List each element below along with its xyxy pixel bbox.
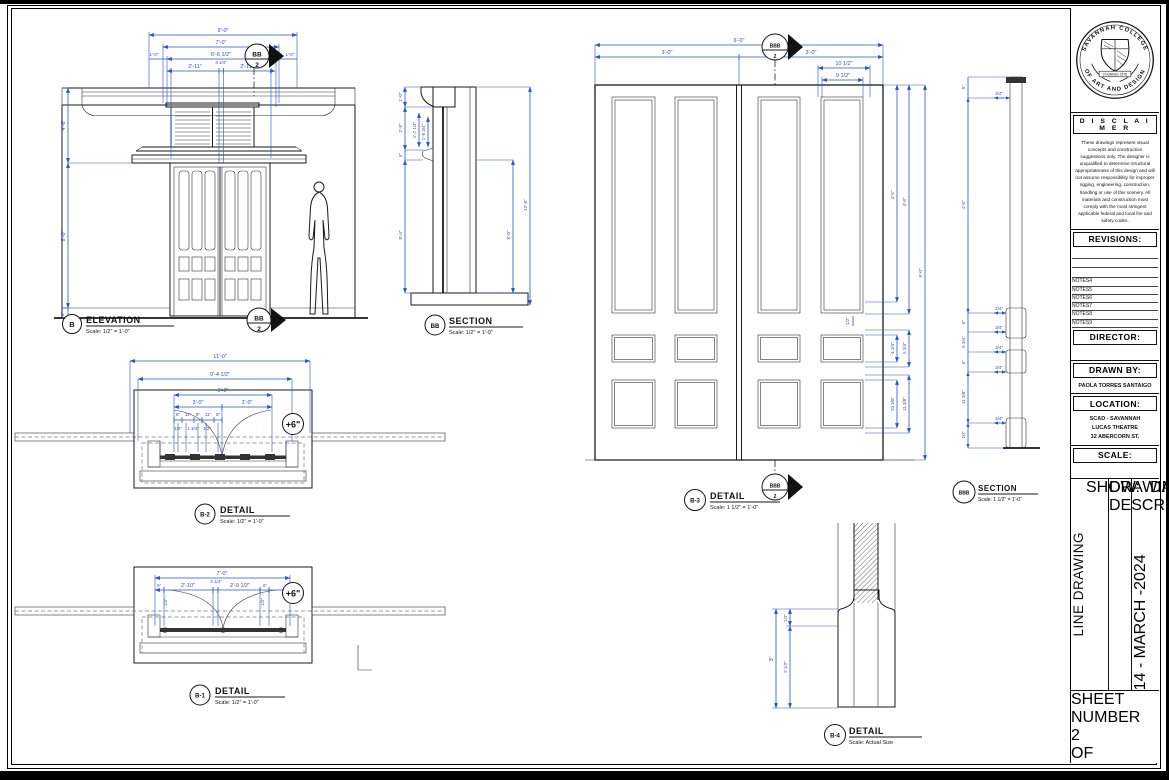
section-dimensions: 1'-0" 2'-8" 5" 8'-4" 1'-7 1/4" 1'-6 3/4"… xyxy=(398,87,530,305)
label-title: DETAIL xyxy=(710,491,745,501)
dim-label: 4 3/4" xyxy=(890,342,895,354)
label-scale: Scale: 1/2" = 1'-0" xyxy=(220,519,264,525)
view-label-detail-b2: B-2 DETAIL Scale: 1/2" = 1'-0" xyxy=(195,504,290,525)
revisions-title: REVISIONS: xyxy=(1073,232,1157,247)
label-scale: Scale: 1/2" = 1'-0" xyxy=(215,700,259,706)
label-bubble: B-1 xyxy=(195,694,205,700)
label-bubble: BB xyxy=(431,324,440,330)
label-title: DETAIL xyxy=(220,505,255,515)
dim-label: 3 1/4" xyxy=(210,579,222,584)
marker-sheet: 2 xyxy=(257,326,261,333)
plan-dimensions: 7'-0" 6" 2'-10" 3 1/4" 2'-9 1/2" 6" 1/2"… xyxy=(155,571,290,626)
label-title: DETAIL xyxy=(215,686,250,696)
marker-id: BB xyxy=(254,316,264,323)
dim-label: 11'-0" xyxy=(213,354,227,360)
date-column: 14 - MARCH -2024 DATE: xyxy=(1132,479,1169,690)
dim-label: 3/4" xyxy=(995,365,1003,370)
dim-label: 2'-8" xyxy=(398,123,403,132)
panel-thickness-dims: 3/4" 3/4" 3/4" 3/4" 3/4" 3/4" xyxy=(994,91,1010,423)
dim-label: 3/4" xyxy=(995,91,1003,96)
dim-label: 8'-4" xyxy=(398,230,403,239)
dim-label: 3" xyxy=(769,656,775,661)
location-title: LOCATION: xyxy=(1073,396,1157,411)
dim-label: 4'-6" xyxy=(961,200,966,209)
show-column: LINE DRAWING SHOW: xyxy=(1071,479,1109,690)
plus6-label: +6" xyxy=(286,420,301,430)
seal-banner: FOUNDED 1978 xyxy=(1103,73,1127,77)
drawn-by-value: PAOLA TORRES SANTAIGO xyxy=(1071,380,1159,395)
elevation-height-badge: +6" xyxy=(283,414,304,435)
dim-label: 2'-10" xyxy=(181,583,195,589)
show-value: LINE DRAWING xyxy=(1071,532,1086,637)
page-edge-bottom xyxy=(0,771,1169,780)
label-title: DETAIL xyxy=(849,726,884,736)
dim-label: 1/2" xyxy=(260,598,265,606)
location-line: SCAD - SAVANNAH xyxy=(1071,415,1159,424)
disclaimer-body: These drawings represent visual concepts… xyxy=(1071,136,1159,230)
dim-label: 1'-0" xyxy=(398,92,403,101)
revision-row: NOTES7 xyxy=(1072,303,1158,311)
dim-label: 6" xyxy=(60,312,65,317)
plus6-label: +6" xyxy=(286,589,301,599)
dim-label: 11 3/8" xyxy=(961,390,966,404)
dim-label: 9'-4 1/2" xyxy=(210,372,230,378)
section-structure xyxy=(411,87,528,305)
label-title: SECTION xyxy=(449,316,493,326)
director-value xyxy=(1071,347,1159,361)
dim-label: 6'-0" xyxy=(734,38,745,44)
dim-label: 9 1/2" xyxy=(836,73,850,79)
dim-label: 1/2" xyxy=(203,426,211,431)
dim-label: 11" xyxy=(185,412,192,417)
dim-label: 8'-0" xyxy=(506,230,511,239)
plan-structure xyxy=(15,390,445,488)
view-detail-b1: 7'-0" 6" 2'-10" 3 1/4" 2'-9 1/2" 6" 1/2"… xyxy=(10,550,450,710)
sheet-of-label: OF xyxy=(1071,745,1159,763)
dim-label: 1'-0" xyxy=(286,52,295,57)
dim-label: 2 1/2" xyxy=(783,661,788,673)
scale-title: SCALE: xyxy=(1073,448,1157,463)
dim-label: 4'-8" xyxy=(902,197,907,206)
marker-id: BB xyxy=(252,52,262,59)
dim-label: 8'-0" xyxy=(918,268,923,277)
dim-label: 3'-0" xyxy=(662,50,673,56)
dim-label: 5 3/4" xyxy=(902,342,907,354)
view-section-bbb: 5" 4'-6" 5" 5 3/4" 5" 11 3/8" 10" 3/4" 3… xyxy=(948,58,1040,513)
marker-sheet: 2 xyxy=(255,62,259,69)
director-title: DIRECTOR: xyxy=(1073,330,1157,345)
double-door xyxy=(170,163,270,316)
dim-label: 10 3/8" xyxy=(890,397,895,412)
dim-label: 1'-7 1/4" xyxy=(412,121,417,138)
dim-label: 5" xyxy=(398,153,403,158)
label-bubble: B xyxy=(69,320,75,329)
scale-value xyxy=(1071,465,1159,479)
dim-label: 5" xyxy=(961,85,966,90)
revision-row: NOTES6 xyxy=(1072,295,1158,303)
dim-label: 12'-6" xyxy=(523,199,528,211)
label-scale: Scale: 1/2" = 1'-0" xyxy=(86,329,130,335)
location-line: LUCAS THEATRE xyxy=(1071,424,1159,433)
dim-label: 1/2" xyxy=(845,317,850,325)
label-bubble: B-4 xyxy=(830,734,840,740)
title-block: SAVANNAH COLLEGE OF ART AND DESIGN FOUND… xyxy=(1070,8,1159,763)
dim-label: 1/2" xyxy=(783,614,788,622)
description-column: DRAWING DESCRIPTION: xyxy=(1109,479,1132,690)
molding-profile xyxy=(838,523,895,707)
dim-label: 6" xyxy=(157,583,162,588)
disclaimer-title: D I S C L A I M E R xyxy=(1073,115,1157,134)
section-cut-marker-bbb-bottom: BBB 2 xyxy=(762,460,803,500)
section-dimensions: 5" 4'-6" 5" 5 3/4" 5" 11 3/8" 10" 3/4" 3… xyxy=(961,77,1010,448)
dim-label: 1 3/4" xyxy=(187,426,199,431)
elevation-height-badge: +6" xyxy=(283,583,304,604)
revision-row: NOTES4 xyxy=(1072,278,1158,286)
view-label-section-bb: BB SECTION Scale: 1/2" = 1'-0" xyxy=(425,315,523,336)
section-cut-marker-bbb-top: BBB 2 xyxy=(762,34,803,85)
dim-label: 4'-6" xyxy=(61,119,67,130)
label-title: SECTION xyxy=(978,484,1017,493)
dim-label: 3'-0" xyxy=(806,50,817,56)
dim-label: 3/4" xyxy=(995,345,1003,350)
sheet-number-value: 2 xyxy=(1071,727,1159,745)
marker-id: BBB xyxy=(770,44,781,50)
revision-row: NOTES8 xyxy=(1072,311,1158,319)
dim-label: 5 3/4" xyxy=(961,336,966,348)
dim-label: 7'-0" xyxy=(217,571,228,577)
view-elevation-b: 9'-0" 7'-0" 6'-6 1/2" 1'-0" 1'-0" 2'-11"… xyxy=(38,8,388,342)
location-line: 32 ABERCORN ST. xyxy=(1071,433,1159,442)
label-bubble: B-2 xyxy=(200,513,210,519)
label-title: ELEVATION xyxy=(86,315,141,325)
page-edge-top xyxy=(0,0,1169,4)
revision-row xyxy=(1072,268,1158,278)
molding-dimensions: 3" 1/2" 2 1/2" xyxy=(769,609,838,708)
revision-row: NOTES5 xyxy=(1072,287,1158,295)
dim-label: 8" xyxy=(216,412,221,417)
scad-seal-icon: SAVANNAH COLLEGE OF ART AND DESIGN FOUND… xyxy=(1073,10,1157,110)
view-label-detail-b1: B-1 DETAIL Scale: 1/2" = 1'-0" xyxy=(190,685,285,706)
label-scale: Scale: 1/2" = 1'-0" xyxy=(449,330,493,336)
view-label-section-bbb: BBB SECTION Scale: 1 1/2" = 1'-0" xyxy=(953,481,1038,503)
dim-label: 1'-6 3/4" xyxy=(421,123,426,140)
dim-label: 8" xyxy=(176,412,181,417)
sheet-number-box: SHEET NUMBER 2 OF xyxy=(1071,691,1159,763)
section-cut-marker-bb-bottom: BB 2 xyxy=(247,308,286,333)
dim-label: 10" xyxy=(961,431,966,438)
label-scale: Scale: Actual Size xyxy=(849,740,893,746)
view-detail-b2: 11'-0" 9'-4 1/2" 6'-0" 3'-0" 3'-0" 8" 11… xyxy=(10,352,450,532)
dim-label: 3/4" xyxy=(995,325,1003,330)
sheet-number-title-line2: NUMBER xyxy=(1071,709,1159,727)
dim-label: 3/4" xyxy=(995,416,1003,421)
view-detail-b3: 6'-0" 3'-0" 3'-0" 10 1/2" 9 1/2" 4'-5" 4… xyxy=(585,30,950,520)
dim-label: 3 1/4" xyxy=(215,60,227,65)
elevation-dimensions: 9'-0" 7'-0" 6'-6 1/2" 1'-0" 1'-0" 2'-11"… xyxy=(60,28,297,318)
drawn-by-title: DRAWN BY: xyxy=(1073,363,1157,378)
dim-label: 3'-0" xyxy=(242,400,253,406)
dim-label: 2'-9 1/2" xyxy=(230,583,250,589)
dim-label: 11" xyxy=(205,412,212,417)
door-dimensions: 6'-0" 3'-0" 3'-0" 10 1/2" 9 1/2" 4'-5" 4… xyxy=(595,38,925,460)
view-label-detail-b4: B-4 DETAIL Scale: Actual Size xyxy=(825,725,923,747)
dim-label: 8" xyxy=(196,412,201,417)
drawing-sheet: 9'-0" 7'-0" 6'-6 1/2" 1'-0" 1'-0" 2'-11"… xyxy=(0,0,1169,780)
date-label: DATE: xyxy=(1150,479,1169,690)
view-detail-b4: 3" 1/2" 2 1/2" B-4 DETAIL Scale: Actual … xyxy=(752,505,952,750)
dim-label: 1'-0" xyxy=(150,52,159,57)
revision-row: NOTES9 xyxy=(1072,320,1158,328)
sheet-number-title-line1: SHEET xyxy=(1071,691,1159,709)
dim-label: 5" xyxy=(961,360,966,365)
dim-label: 3'-0" xyxy=(193,400,204,406)
dim-label: 2'-11" xyxy=(188,64,202,70)
marker-sheet: 2 xyxy=(774,54,777,60)
dim-label: 5" xyxy=(961,320,966,325)
human-figure xyxy=(309,182,329,314)
section-structure xyxy=(1003,77,1040,448)
marker-id: BBB xyxy=(770,484,781,490)
dim-label: 6'-0" xyxy=(218,388,229,394)
view-section-bb: 1'-0" 2'-8" 5" 8'-4" 1'-7 1/4" 1'-6 3/4"… xyxy=(393,75,548,345)
dim-label: 6" xyxy=(263,583,268,588)
dim-label: 6'-6 1/2" xyxy=(211,52,231,58)
label-scale: Scale: 1 1/2" = 1'-0" xyxy=(978,497,1022,503)
dim-label: 10 1/2" xyxy=(835,61,852,67)
louver-transom xyxy=(166,103,259,147)
marker-sheet: 2 xyxy=(774,494,777,500)
revision-row xyxy=(1072,249,1158,259)
dim-label: 7'-0" xyxy=(216,40,227,46)
label-bubble: BBB xyxy=(959,491,970,497)
location-value: SCAD - SAVANNAH LUCAS THEATRE 32 ABERCOR… xyxy=(1071,413,1159,445)
revision-row xyxy=(1072,259,1158,269)
dim-label: 3/4" xyxy=(995,306,1003,311)
dim-label: 8'-0" xyxy=(61,230,67,241)
dim-label: 9'-0" xyxy=(218,28,229,34)
date-value: 14 - MARCH -2024 xyxy=(1132,479,1150,690)
label-bubble: B-3 xyxy=(690,499,700,505)
scad-seal: SAVANNAH COLLEGE OF ART AND DESIGN FOUND… xyxy=(1071,8,1159,113)
door-pair xyxy=(585,85,915,460)
dim-label: 11 3/8" xyxy=(902,397,907,411)
dim-label: 4'-5" xyxy=(890,190,895,199)
dim-label: 1/2" xyxy=(163,598,168,606)
show-description-date-strip: LINE DRAWING SHOW: DRAWING DESCRIPTION: … xyxy=(1071,479,1159,691)
